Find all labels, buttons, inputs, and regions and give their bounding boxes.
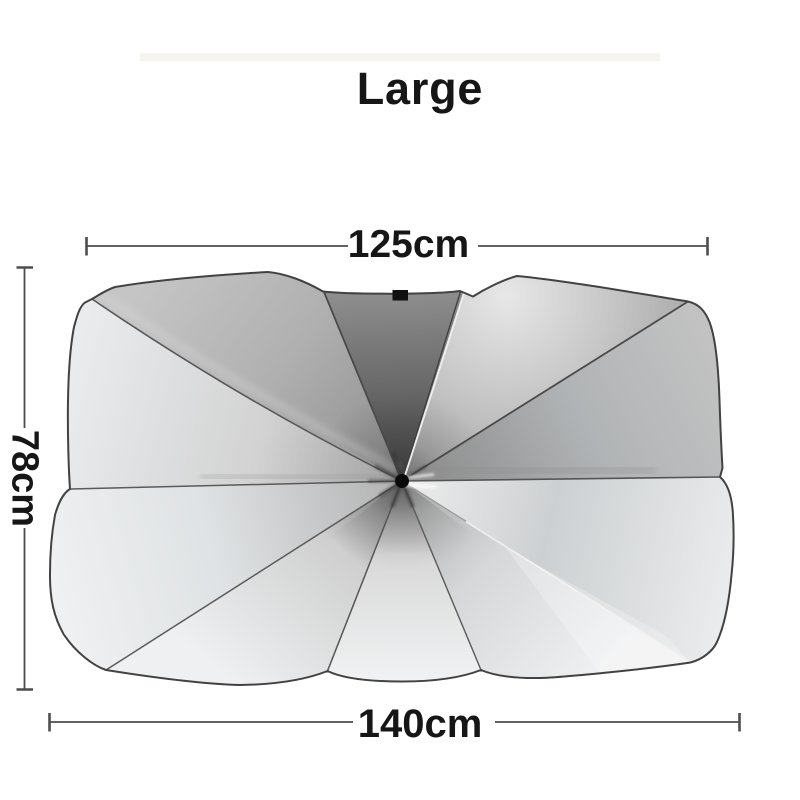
svg-text:140cm: 140cm xyxy=(358,702,483,746)
svg-text:125cm: 125cm xyxy=(348,223,469,266)
svg-text:78cm: 78cm xyxy=(4,430,46,527)
svg-text:Large: Large xyxy=(357,63,484,114)
